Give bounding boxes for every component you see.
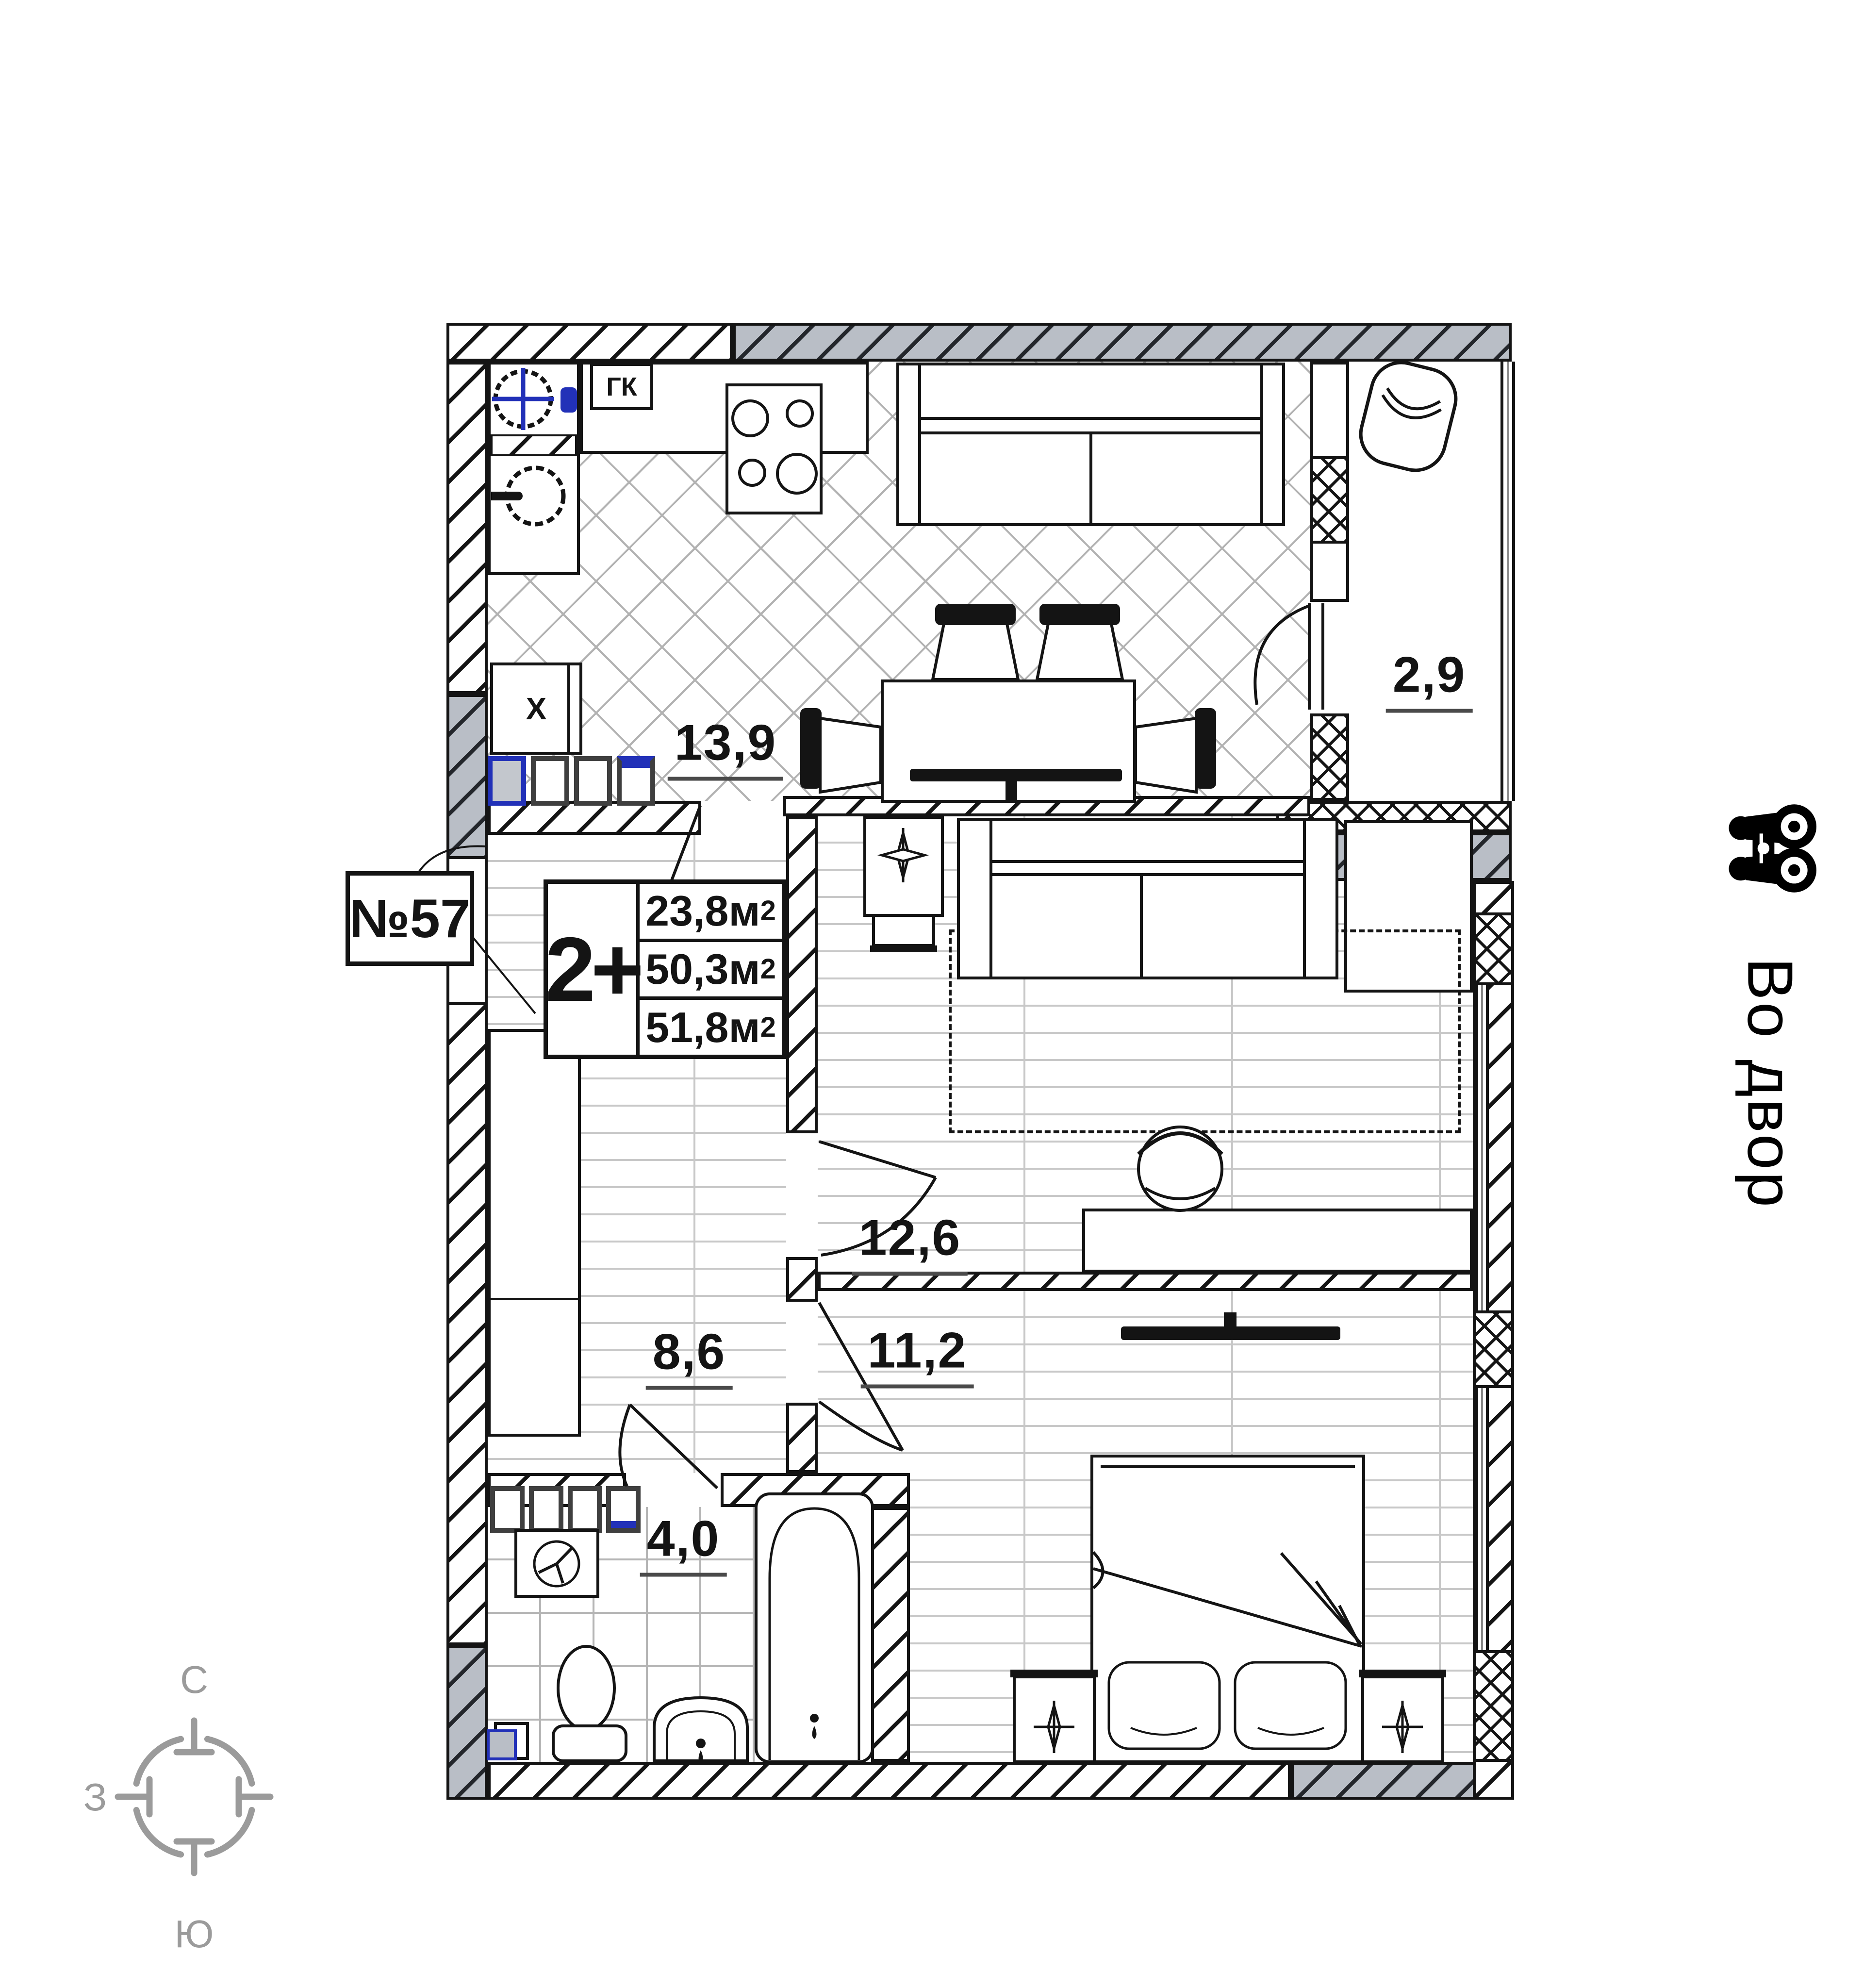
svg-text:С: С [180,1658,208,1701]
kitchen-sink-icon [491,468,563,524]
apartment-type: 2+ [548,884,640,1055]
bathtub [756,1494,873,1762]
toilet [553,1646,626,1761]
bedroom-area-label: 11,2 [861,1322,974,1389]
area-row-total: 50,3м2 [640,942,782,1000]
balcony-door [1255,603,1323,710]
bedroom-tv [1121,1312,1340,1340]
bath-sink [654,1698,747,1763]
bathroom-door [620,1405,717,1488]
kitchen-living-area-label: 13,9 [668,714,783,781]
desk-chair [1138,1127,1222,1210]
room-area-label: 12,6 [852,1209,968,1276]
bed [1092,1456,1364,1762]
binoculars-icon [1729,804,1817,893]
stove-burners [733,401,816,493]
svg-text:З: З [83,1775,107,1819]
vent-icon [492,368,577,430]
apartment-info-box: 2+ 23,8м2 50,3м2 51,8м2 [544,879,786,1059]
plan-lineart: С З Ю [0,0,1863,1988]
washer-drum [534,1541,579,1586]
living-sofa [898,364,1284,525]
room-sofa [958,819,1337,978]
balcony-area-label: 2,9 [1386,646,1473,713]
balcony-armchair [1354,356,1462,477]
courtyard-view-label: Во двор [1734,958,1807,1209]
apartment-number-box: №57 [346,871,474,966]
hall-area-label: 8,6 [646,1324,733,1390]
floor-plan-page: ГК Х [0,0,1863,1988]
compass-icon [118,1721,270,1873]
area-row-living: 23,8м2 [640,884,782,942]
svg-text:Ю: Ю [175,1912,214,1955]
area-row-reduced: 51,8м2 [640,1000,782,1055]
apartment-number: №57 [349,887,470,950]
bathroom-area-label: 4,0 [640,1510,727,1577]
